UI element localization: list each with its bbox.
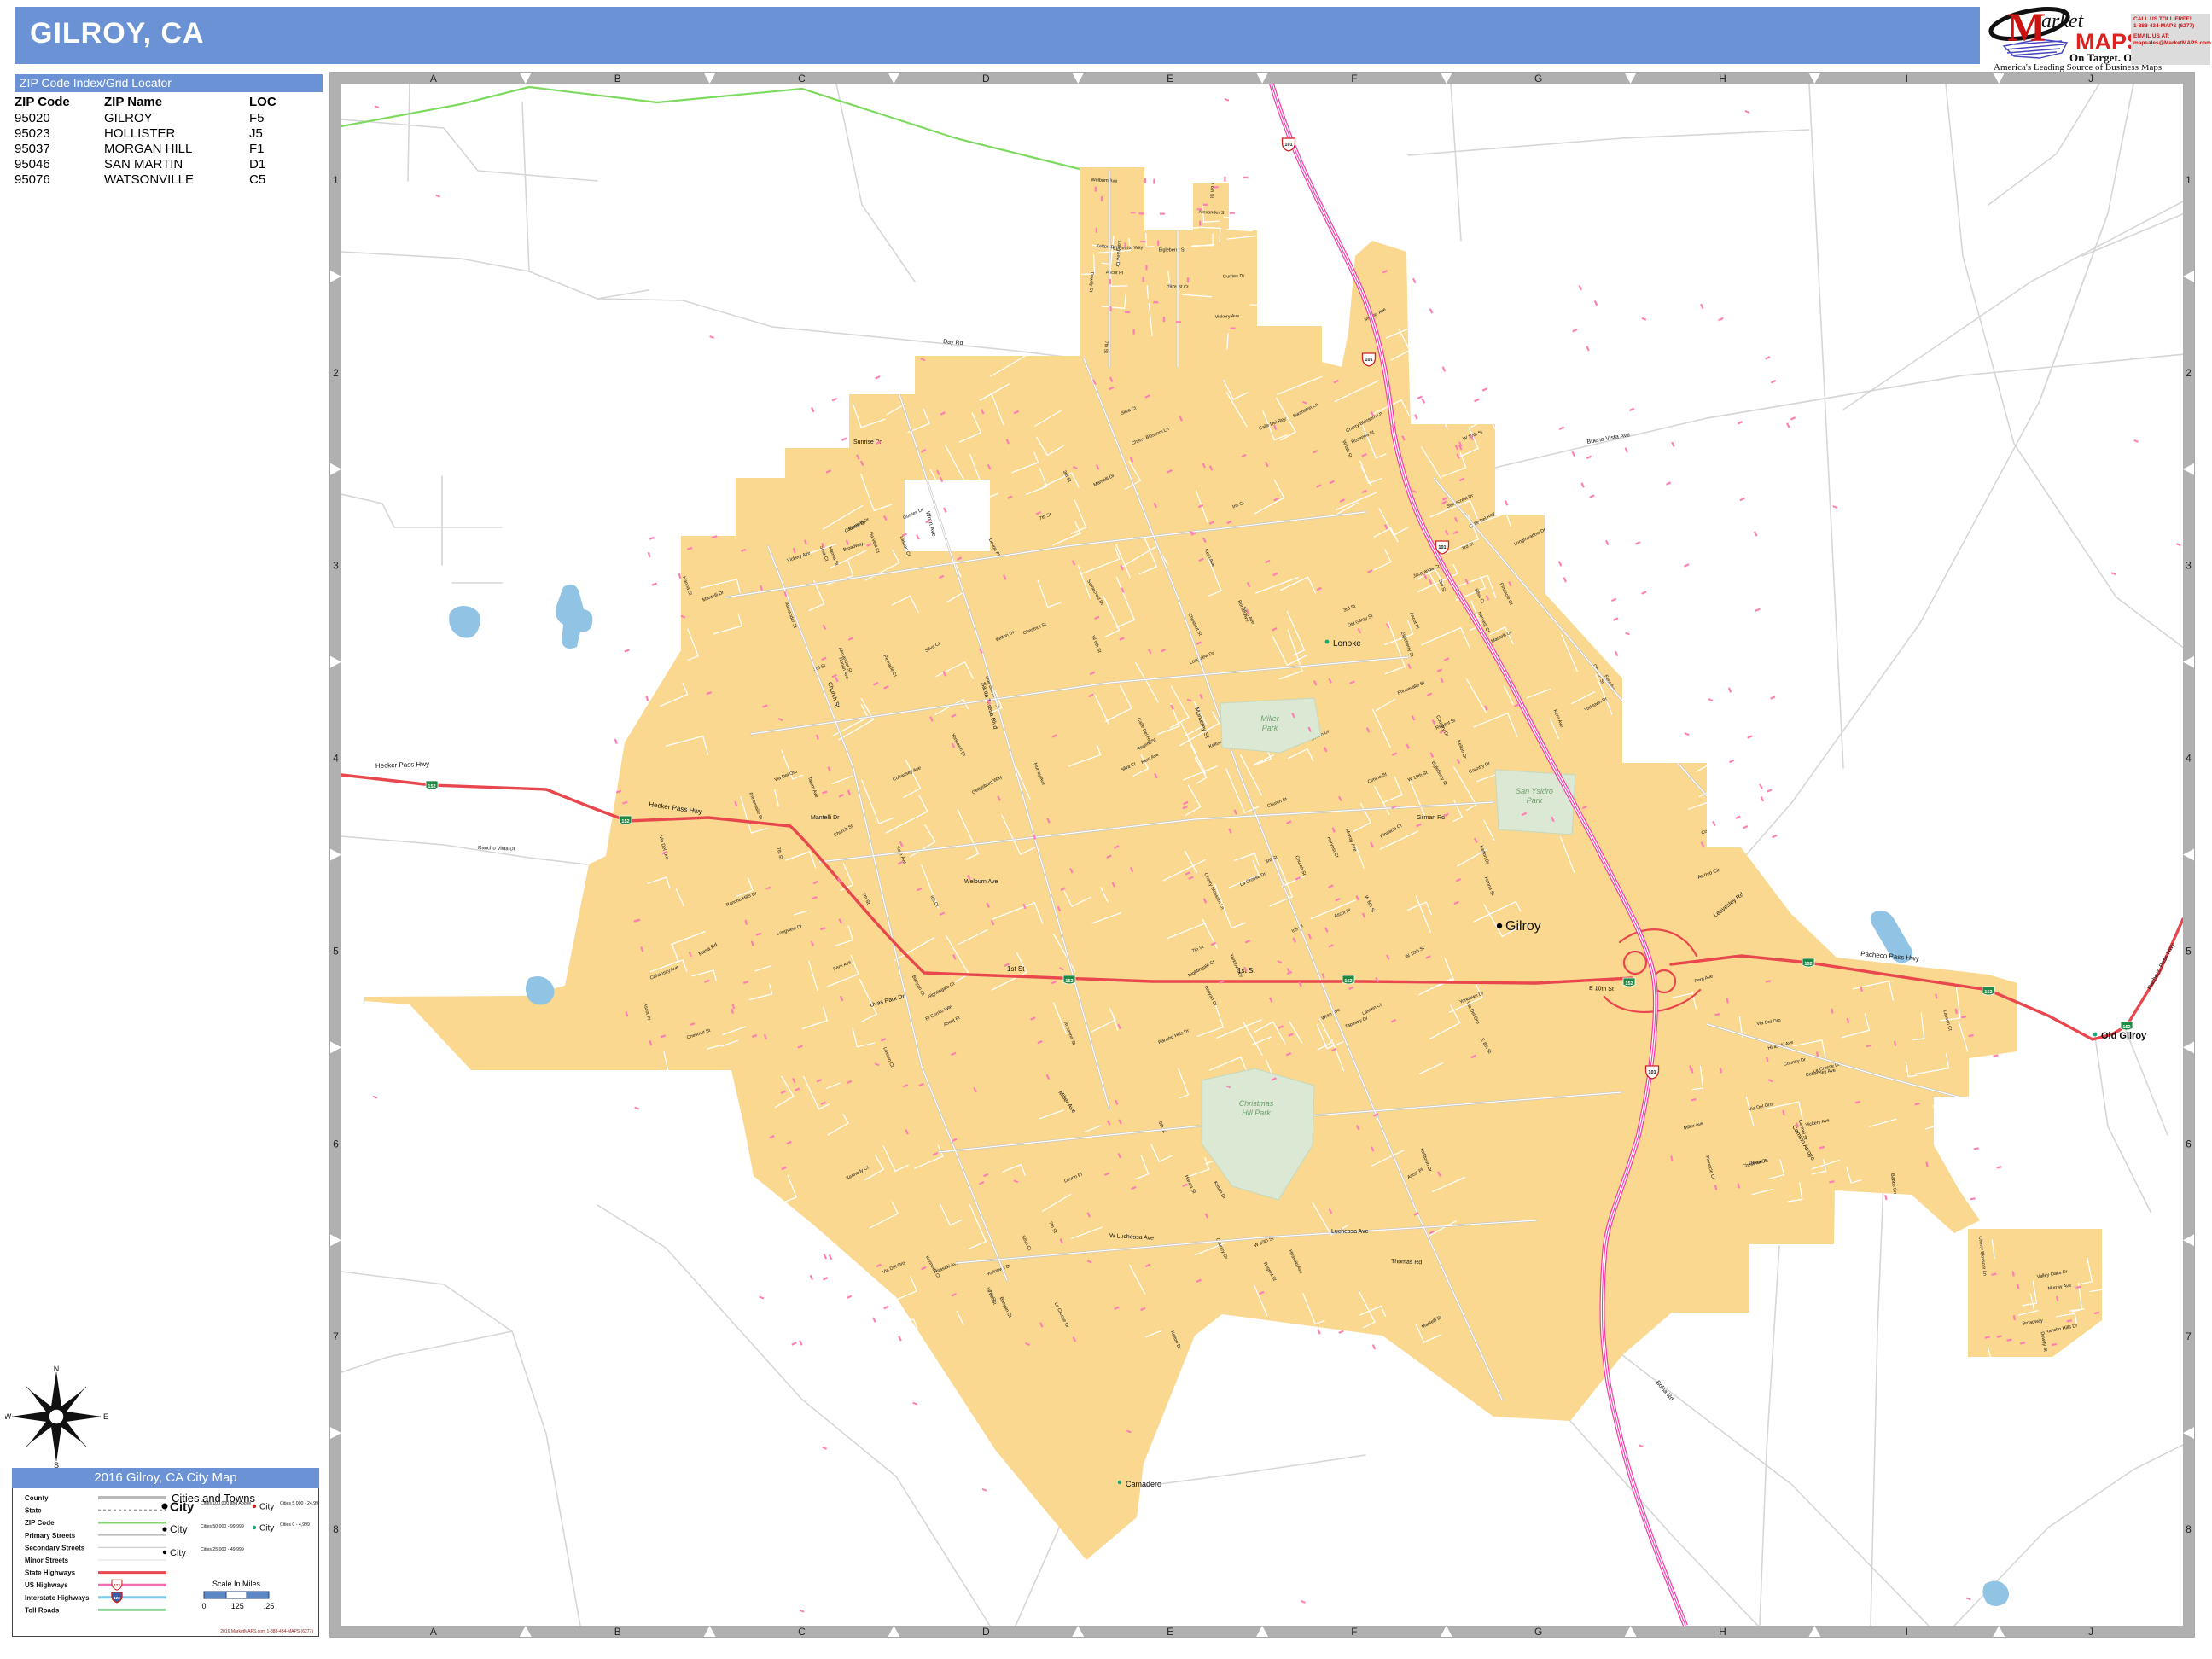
block-tick xyxy=(1767,1057,1767,1062)
city-label: Camadero xyxy=(1126,1480,1161,1488)
legend-scale-title: Scale In Miles xyxy=(212,1580,261,1588)
legend-city-dot xyxy=(253,1505,256,1508)
grid-letter-bottom: F xyxy=(1351,1626,1357,1638)
grid-letter-top: A xyxy=(430,73,437,84)
block-tick xyxy=(1783,1110,1784,1115)
block-tick xyxy=(1715,1185,1716,1190)
state-route-shield: 152 xyxy=(426,781,438,789)
grid-number-right: 5 xyxy=(2186,945,2192,957)
block-tick xyxy=(1727,998,1728,1004)
block-tick xyxy=(1866,1045,1871,1046)
state-route-shield: 152 xyxy=(620,816,632,824)
city-dot xyxy=(2093,1033,2098,1037)
grid-letter-top: G xyxy=(1534,73,1542,84)
block-tick xyxy=(2052,1344,2057,1345)
block-tick xyxy=(1970,1198,1976,1199)
street-name: Vickery Ave xyxy=(1215,314,1240,320)
block-tick xyxy=(1885,1195,1886,1200)
grid-number-right: 3 xyxy=(2186,560,2192,572)
legend-city-dot xyxy=(162,1527,166,1531)
grid-letter-bottom: J xyxy=(2088,1626,2093,1638)
svg-text:152: 152 xyxy=(1984,990,1992,995)
road-label: Thomas Rd xyxy=(1391,1259,1423,1266)
legend-fine-print: 2016 MarketMAPS.com 1-888-434-MAPS (6277… xyxy=(220,1629,313,1634)
legend-city-caption: Cities 100,000 and Above xyxy=(201,1501,251,1506)
park-label: Park xyxy=(1527,796,1543,805)
grid-letter-top: I xyxy=(1906,73,1908,84)
block-tick xyxy=(2013,1272,2014,1277)
legend-item-label: Toll Roads xyxy=(25,1606,60,1614)
legend-panel: 2016 Gilroy, CA City Map Cities and Town… xyxy=(12,1468,319,1637)
us-route-shield: 101 xyxy=(1436,541,1449,554)
block-tick xyxy=(1671,1156,1672,1161)
city-map: AABBCCDDEEFFGGHHIIJJ1122334455667788Rosa… xyxy=(0,0,2212,1659)
grid-number-right: 7 xyxy=(2186,1330,2192,1342)
state-route-shield: 152 xyxy=(1802,958,1814,967)
grid-letter-bottom: C xyxy=(798,1626,806,1638)
grid-letter-bottom: H xyxy=(1719,1626,1726,1638)
block-tick xyxy=(1766,981,1771,981)
legend-city-caption: Cities 25,000 - 49,999 xyxy=(201,1547,244,1552)
grid-letter-top: C xyxy=(798,73,806,84)
city-dot xyxy=(1497,923,1502,928)
block-tick xyxy=(2057,1296,2058,1301)
block-tick xyxy=(1861,987,1862,992)
city-dot xyxy=(1118,1481,1121,1484)
us-route-shield: 101 xyxy=(1283,138,1295,151)
block-tick xyxy=(1915,1103,1920,1104)
grid-number-left: 3 xyxy=(333,560,339,572)
state-route-shield: 152 xyxy=(1063,975,1075,984)
park-label: San Ysidro xyxy=(1516,787,1553,795)
block-tick xyxy=(1926,1162,1927,1167)
legend-item-label: ZIP Code xyxy=(25,1519,55,1527)
grid-number-left: 7 xyxy=(333,1330,339,1342)
block-tick xyxy=(1997,1167,2002,1167)
grid-letter-bottom: A xyxy=(430,1626,437,1638)
grid-number-left: 5 xyxy=(333,945,339,957)
street-name: Alexander St xyxy=(1198,210,1225,216)
park-label: Miller xyxy=(1260,714,1280,723)
block-tick xyxy=(2017,1284,2018,1289)
svg-text:152: 152 xyxy=(1804,962,1812,967)
grid-number-left: 8 xyxy=(333,1523,339,1535)
block-tick xyxy=(1961,1016,1966,1017)
legend-item-label: State xyxy=(25,1507,42,1515)
us-route-shield: 101 xyxy=(1363,353,1376,366)
legend-scale-bar-mid xyxy=(226,1592,247,1598)
grid-letter-bottom: D xyxy=(982,1626,990,1638)
legend-city-label: City xyxy=(259,1524,274,1534)
block-tick xyxy=(1985,1336,1990,1337)
road-label: Luchessa Ave xyxy=(1331,1229,1369,1235)
legend-item-label: State Highways xyxy=(25,1569,76,1577)
legend-interstate-num: 123 xyxy=(114,1596,120,1600)
block-tick xyxy=(1997,1336,2002,1336)
svg-text:152: 152 xyxy=(1065,979,1073,984)
block-tick xyxy=(1691,1068,1692,1074)
grid-letter-top: D xyxy=(982,73,990,84)
grid-number-left: 2 xyxy=(333,367,339,379)
grid-number-left: 1 xyxy=(333,174,339,186)
svg-text:101: 101 xyxy=(1438,545,1446,550)
svg-text:101: 101 xyxy=(1365,358,1372,363)
block-tick xyxy=(1819,1147,1825,1148)
state-route-shield: 152 xyxy=(1342,975,1354,984)
grid-number-left: 6 xyxy=(333,1138,339,1150)
block-tick xyxy=(1969,1035,1974,1036)
legend-city-label: City xyxy=(170,1548,186,1558)
legend-scale-label: .25 xyxy=(264,1602,275,1610)
road-label: Mantelli Dr xyxy=(811,815,840,821)
block-tick xyxy=(2076,1287,2081,1288)
grid-letter-top: B xyxy=(614,73,621,84)
legend-city-label: City xyxy=(170,1523,188,1535)
block-tick xyxy=(1831,1009,1832,1014)
legend-city-dot xyxy=(162,1504,168,1510)
grid-letter-bottom: I xyxy=(1906,1626,1908,1638)
grid-letter-top: E xyxy=(1167,73,1173,84)
svg-text:152: 152 xyxy=(1344,979,1352,984)
grid-number-right: 6 xyxy=(2186,1138,2192,1150)
street-name: Gurries Dr xyxy=(1223,274,1245,280)
svg-text:152: 152 xyxy=(428,784,435,789)
block-tick xyxy=(1817,1052,1818,1057)
road-label: E 10th St xyxy=(1589,986,1614,992)
legend-us-shield-num: 123 xyxy=(114,1583,120,1587)
street-name: 7th St xyxy=(1103,341,1109,353)
city-label: Old Gilroy xyxy=(2101,1031,2147,1041)
grid-number-right: 2 xyxy=(2186,367,2192,379)
block-tick xyxy=(1855,1102,1860,1103)
block-tick xyxy=(1895,1041,1895,1046)
grid-number-right: 1 xyxy=(2186,174,2192,186)
state-route-shield: 152 xyxy=(1623,978,1635,987)
block-tick xyxy=(2014,1315,2015,1320)
street-name: Dowdy St xyxy=(1088,271,1094,292)
grid-letter-bottom: G xyxy=(1534,1626,1542,1638)
legend-title: 2016 Gilroy, CA City Map xyxy=(12,1468,319,1488)
map-poster: GILROY, CA ZIP Code Index/Grid Locator Z… xyxy=(0,0,2212,1659)
legend-city-dot xyxy=(253,1526,256,1529)
grid-letter-bottom: E xyxy=(1167,1626,1173,1638)
grid-number-right: 4 xyxy=(2186,753,2192,765)
legend-city-label: City xyxy=(259,1503,274,1512)
park-label: Hill Park xyxy=(1242,1109,1271,1117)
grid-letter-top: H xyxy=(1719,73,1726,84)
grid-letter-top: J xyxy=(2088,73,2093,84)
grid-number-left: 4 xyxy=(333,753,339,765)
legend-item-label: Minor Streets xyxy=(25,1557,69,1564)
block-tick xyxy=(2020,1342,2025,1343)
block-tick xyxy=(1691,1099,1697,1100)
state-route-shield: 152 xyxy=(1982,987,1994,995)
block-tick xyxy=(1714,1014,1720,1015)
city-dot xyxy=(1325,640,1330,644)
block-tick xyxy=(1829,1181,1834,1182)
legend-city-caption: Cities 0 - 4,999 xyxy=(280,1522,310,1528)
legend-city-caption: Cities 50,000 - 99,999 xyxy=(201,1524,244,1529)
block-tick xyxy=(2094,1313,2099,1313)
legend-item-label: Secondary Streets xyxy=(25,1544,85,1551)
legend-item-label: US Highways xyxy=(25,1581,68,1589)
road-label: Gilman Rd xyxy=(1417,815,1445,821)
block-tick xyxy=(1848,1018,1848,1023)
zip-region-hole xyxy=(781,369,841,432)
block-tick xyxy=(1992,1274,1997,1275)
block-tick xyxy=(1935,994,1936,999)
block-tick xyxy=(1720,1068,1721,1073)
svg-text:152: 152 xyxy=(2122,1025,2130,1030)
block-tick xyxy=(1994,1056,1999,1057)
city-label: Lonoke xyxy=(1333,639,1361,649)
legend-item-label: County xyxy=(25,1494,49,1502)
svg-text:152: 152 xyxy=(621,819,629,824)
block-tick xyxy=(2067,1320,2072,1321)
block-tick xyxy=(1738,1184,1739,1189)
legend-item-label: Primary Streets xyxy=(25,1532,76,1540)
svg-text:101: 101 xyxy=(1648,1070,1656,1075)
svg-text:101: 101 xyxy=(1284,143,1292,148)
legend-scale-label: 0 xyxy=(201,1602,206,1610)
street-name: Eigleberry St xyxy=(1159,248,1186,253)
block-tick xyxy=(1974,1148,1979,1149)
legend-city-dot xyxy=(163,1551,166,1554)
svg-text:152: 152 xyxy=(1625,981,1633,987)
legend-item-label: Interstate Highways xyxy=(25,1594,90,1602)
road-label: 1st St xyxy=(1007,965,1025,973)
park-label: Christmas xyxy=(1239,1099,1274,1108)
block-tick xyxy=(1796,1123,1797,1128)
us-route-shield: 101 xyxy=(1646,1066,1659,1079)
legend-city-caption: Cities 5,000 - 24,999 xyxy=(280,1501,318,1506)
grid-number-right: 8 xyxy=(2186,1523,2192,1535)
city-label: Gilroy xyxy=(1505,919,1541,934)
grid-letter-bottom: B xyxy=(614,1626,621,1638)
state-route-shield: 152 xyxy=(2121,1022,2133,1030)
grid-letter-top: F xyxy=(1351,73,1357,84)
block-tick xyxy=(2007,1340,2012,1341)
park-label: Park xyxy=(1262,724,1278,732)
block-tick xyxy=(1956,1009,1957,1014)
legend-scale-label: .125 xyxy=(229,1602,244,1610)
legend-city-label: City xyxy=(170,1499,195,1514)
